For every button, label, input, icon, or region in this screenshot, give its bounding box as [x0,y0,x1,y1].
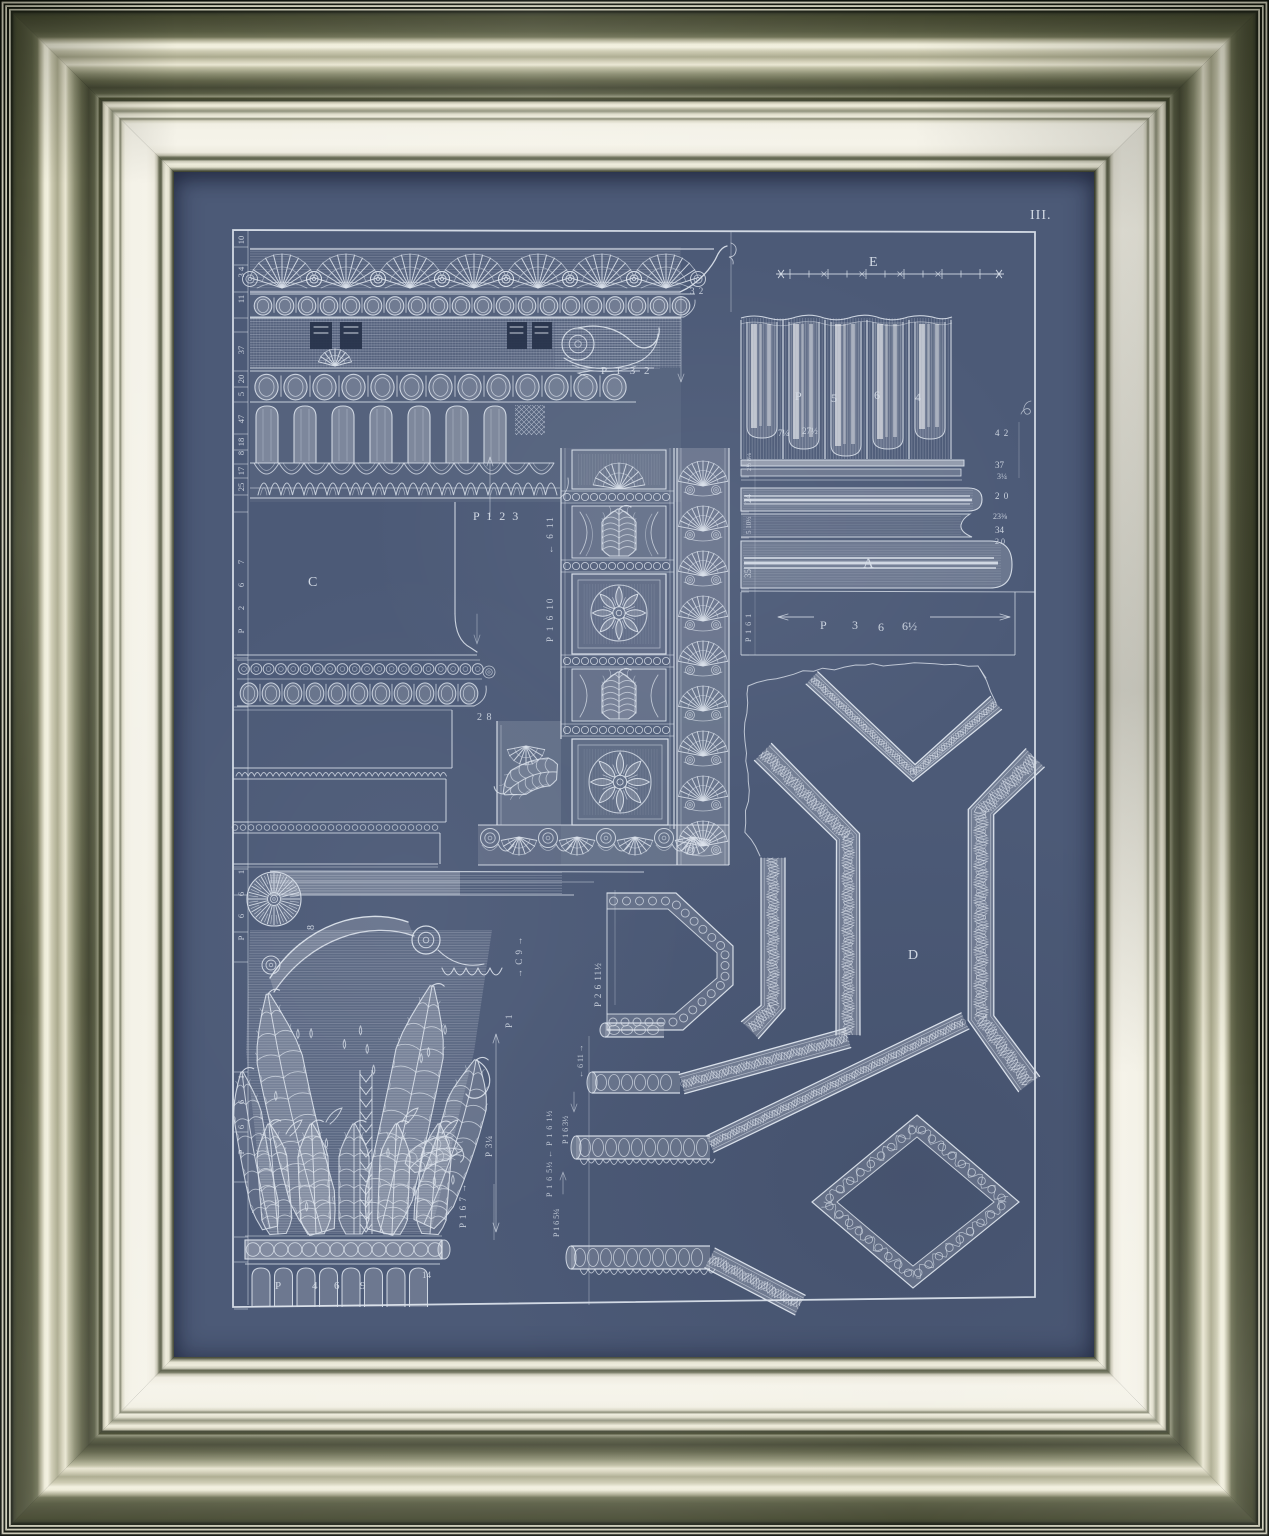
svg-text:2 8: 2 8 [477,712,493,723]
svg-text:6: 6 [236,892,246,896]
svg-text:6: 6 [878,620,884,634]
svg-text:P 1 6 3½: P 1 6 3½ [561,1116,570,1144]
svg-text:2 0: 2 0 [995,491,1009,501]
svg-text:P 1: P 1 [504,1014,514,1028]
svg-text:35: 35 [743,569,753,579]
svg-text:6: 6 [334,1280,340,1292]
svg-text:← 6 11 →: ← 6 11 → [576,1044,585,1078]
svg-text:3 4: 3 4 [236,266,246,277]
svg-text:24: 24 [743,494,753,504]
svg-text:6: 6 [874,388,880,402]
svg-text:3¼: 3¼ [997,472,1007,481]
svg-text:P: P [236,628,246,633]
svg-text:11: 11 [236,295,246,303]
svg-text:6: 6 [236,914,246,918]
svg-text:D: D [908,948,918,963]
svg-text:14: 14 [422,1270,432,1280]
svg-text:A: A [863,556,875,572]
svg-text:18: 18 [236,438,246,447]
svg-text:4: 4 [312,1280,318,1292]
svg-text:P 1 6 5¼: P 1 6 5¼ [552,1209,561,1237]
svg-text:9: 9 [360,1280,366,1292]
svg-text:P: P [795,389,802,403]
svg-text:10: 10 [236,236,246,245]
svg-text:C: C [308,575,317,590]
svg-text:← 6 11: ← 6 11 [545,515,555,554]
svg-text:5 10½: 5 10½ [745,517,753,535]
svg-text:25: 25 [236,483,246,492]
svg-text:27½: 27½ [802,426,818,436]
svg-text:P: P [820,618,827,632]
svg-text:P 1 2 3: P 1 2 3 [473,509,520,523]
svg-text:5: 5 [831,391,837,405]
svg-text:37: 37 [236,346,246,355]
svg-text:34: 34 [995,525,1005,535]
svg-text:P 3¼: P 3¼ [484,1135,494,1157]
svg-text:23⅜: 23⅜ [993,512,1007,521]
svg-text:E: E [869,255,879,270]
svg-text:7: 7 [236,560,246,564]
svg-text:3: 3 [852,618,858,632]
svg-text:P 1 6 5½ ← P 1 6 1½: P 1 6 5½ ← P 1 6 1½ [545,1110,554,1197]
svg-text:6½: 6½ [902,619,917,633]
svg-text:47: 47 [236,415,246,424]
svg-text:P 2 6 11½: P 2 6 11½ [593,962,603,1007]
svg-text:P 1 6 10: P 1 6 10 [545,597,555,642]
svg-text:III.: III. [1030,208,1052,223]
svg-text:20: 20 [236,375,246,384]
svg-text:P: P [236,935,246,940]
svg-text:2 0: 2 0 [995,537,1005,546]
svg-text:6: 6 [236,583,246,587]
svg-text:P: P [275,1280,281,1292]
svg-text:2½ 8⅛: 2½ 8⅛ [746,453,753,471]
svg-text:1: 1 [236,870,246,874]
svg-text:17: 17 [236,467,246,476]
svg-text:7¼: 7¼ [778,428,790,438]
svg-text:P 1 6 1: P 1 6 1 [744,613,753,642]
svg-text:8: 8 [306,925,317,930]
svg-text:2: 2 [236,606,246,610]
svg-text:37: 37 [995,460,1005,470]
svg-text:3 2: 3 2 [690,286,704,296]
svg-text:→ C 9 →: → C 9 → [514,936,524,978]
svg-text:4: 4 [915,390,921,404]
svg-text:P 1 6 7 →: P 1 6 7 → [458,1183,468,1228]
svg-text:4 2: 4 2 [995,428,1009,438]
svg-text:8: 8 [236,451,246,455]
svg-text:5: 5 [236,392,246,396]
